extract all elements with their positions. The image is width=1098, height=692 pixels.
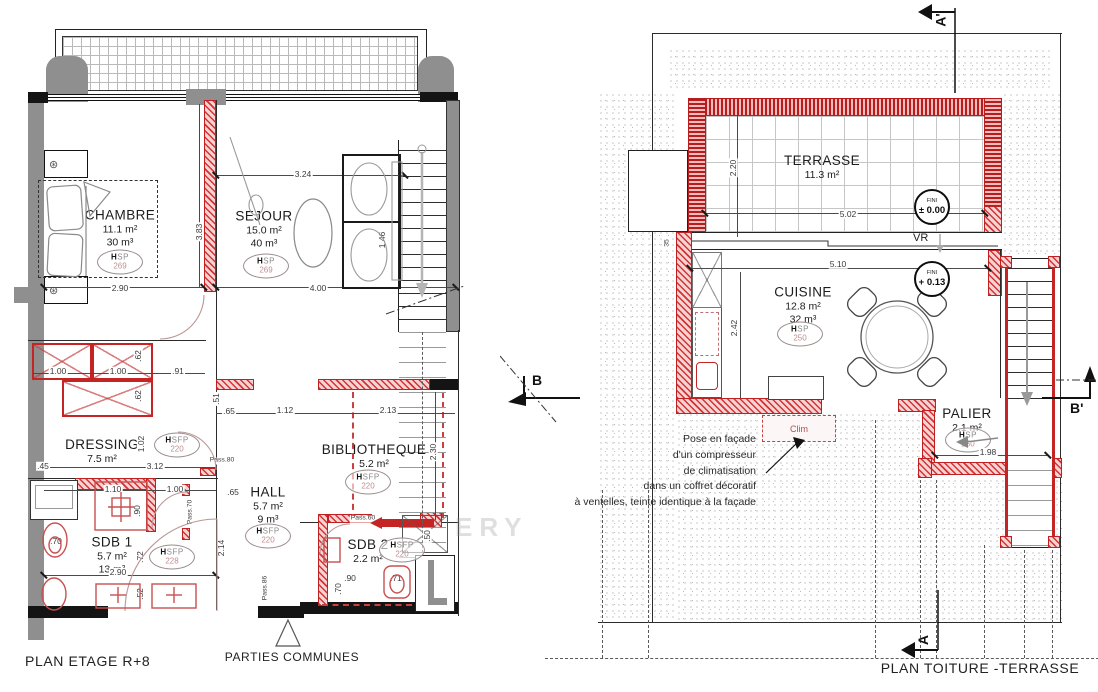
- section-marker-b: B: [532, 372, 542, 388]
- vr-strip: [688, 232, 1002, 250]
- stairs-post-bl: [1000, 536, 1012, 548]
- fini-label: FINI: [927, 199, 937, 205]
- terrasse-rail-left: [688, 98, 706, 238]
- stairs-steps-upper: [1007, 268, 1054, 404]
- window-sejour: [226, 94, 420, 101]
- room-label-hall: HALL 5.7 m² 9 m³: [250, 485, 285, 526]
- room-name: CUISINE: [774, 285, 832, 300]
- dim-label: 2.42: [730, 319, 739, 338]
- clim-box: Clim: [762, 415, 836, 442]
- room-label-cuisine: CUISINE 12.8 m² 32 m³: [774, 285, 832, 326]
- dim-label: .65: [222, 407, 236, 416]
- red-wall-palier-b: [922, 410, 935, 464]
- bathtub-inner: [35, 485, 73, 509]
- dim-label: 5.02: [839, 210, 858, 219]
- grid-dash: [920, 480, 921, 658]
- property-line-top: [652, 33, 1062, 34]
- bottom-wall-b: [258, 606, 304, 618]
- hsp-badge-sdb1: HSFP 228: [149, 545, 195, 570]
- stairs-post-br: [1048, 536, 1060, 548]
- red-corner-palier-l: [918, 458, 932, 478]
- dim-label: .70: [334, 582, 343, 596]
- dim-label-pass: Pass.60: [350, 516, 377, 523]
- right-plan-title: PLAN TOITURE -TERRASSE: [881, 660, 1080, 676]
- grid-dash: [984, 545, 985, 658]
- dim-label: 2.30: [429, 443, 438, 462]
- dim-label: 4.00: [309, 284, 328, 293]
- dim-label: .72: [136, 550, 145, 564]
- hsp-badge-cuisine: HSP 250: [777, 322, 823, 347]
- room-label-chambre: CHAMBRE 11.1 m² 30 m³: [85, 208, 155, 249]
- dim-label: .52: [136, 587, 145, 601]
- red-wall-sdb1-v: [146, 478, 156, 532]
- dim-label: .91: [171, 367, 185, 376]
- hsp-badge-sejour: HSP 269: [243, 254, 289, 279]
- dim-label: 1.46: [378, 231, 387, 250]
- fini-value: + 0.13: [919, 278, 946, 288]
- level-badge-cuisine: FINI + 0.13: [914, 261, 950, 297]
- property-line-left: [652, 33, 653, 622]
- dim-label: 2.14: [217, 539, 226, 558]
- hsp-badge-hall: HSFP 220: [245, 524, 291, 549]
- room-area: 5.7 m²: [250, 501, 285, 513]
- dim-label: 2.20: [729, 159, 738, 178]
- fini-value: ± 0.00: [919, 206, 945, 216]
- dim-label: .62: [134, 389, 143, 403]
- hsp-value: 220: [361, 482, 374, 490]
- vent-icon: ⊛: [49, 284, 58, 297]
- hsp-value: 228: [165, 557, 178, 565]
- right-boundary: [458, 330, 459, 616]
- dim-line: [44, 490, 216, 491]
- cuisine-right-line: [1000, 250, 1001, 398]
- grid-dash: [936, 480, 937, 658]
- left-plan: ⊛ ⊛ ERY CHAMBRE 11.1 m² 30 m³ HSP 269 SE…: [0, 0, 480, 692]
- dim-label: 1.00: [109, 367, 128, 376]
- dim-label: 1.00: [166, 485, 185, 494]
- section-marker-b-prime: B': [1070, 400, 1083, 416]
- red-door-jamb-1: [200, 468, 216, 476]
- dim-label: .90: [343, 574, 357, 583]
- red-wall-chambre-sejour: [204, 100, 216, 292]
- hsp-value: 220: [261, 536, 274, 544]
- property-line-bottom: [598, 622, 1062, 623]
- dim-label-pass: Pass.86: [263, 575, 270, 602]
- hsp-badge-bibliotheque: HSFP 220: [345, 470, 391, 495]
- red-wall-sdb2-left: [318, 514, 328, 606]
- dim-line: [44, 575, 216, 576]
- vegetation-right: [1002, 92, 1060, 256]
- vr-label: VR: [913, 232, 928, 244]
- dim-line: [740, 272, 741, 398]
- facade-note: Pose en façade d'un compresseur de clima…: [528, 432, 756, 511]
- dim-line: [216, 287, 456, 288]
- sdb2-shower-dash: [322, 604, 412, 606]
- stairs-rail-left: [1005, 262, 1008, 546]
- stairs-rail-right: [1052, 262, 1055, 546]
- dim-label: .70: [49, 537, 63, 546]
- dim-label: 1.02: [137, 435, 146, 454]
- vent-box-2: ⊛: [44, 276, 88, 304]
- room-volume: 30 m³: [85, 237, 155, 249]
- red-door-jamb-3: [182, 528, 190, 540]
- hsp-value: 269: [113, 262, 126, 270]
- dim-label: 1.12: [276, 406, 295, 415]
- grid-dash-h: [545, 658, 1098, 659]
- room-label-dressing: DRESSING 7.5 m²: [65, 437, 139, 465]
- clim-label: Clim: [790, 424, 808, 434]
- terrasse-rail-right: [984, 98, 1002, 208]
- kitchen-sink: [696, 362, 718, 390]
- room-name: CHAMBRE: [85, 208, 155, 223]
- dim-label: 35: [665, 238, 672, 248]
- room-name: SDB 1: [91, 535, 132, 550]
- kitchen-island: [768, 376, 824, 400]
- room-name: SEJOUR: [235, 209, 292, 224]
- dim-label: 1.98: [979, 448, 998, 457]
- dim-line: [44, 467, 216, 468]
- vent-box-1: ⊛: [44, 150, 88, 178]
- hsp-value: 220: [170, 445, 183, 453]
- room-label-terrasse: TERRASSE 11.3 m²: [784, 153, 860, 181]
- room-volume: 40 m³: [235, 238, 292, 250]
- stairs-post-tl: [1000, 256, 1012, 268]
- terrasse-rail-top: [688, 98, 1002, 116]
- red-wall-cuisine-bottom: [676, 398, 822, 414]
- kitchen-counter-cross: [692, 252, 722, 308]
- dim-label: 2.13: [379, 406, 398, 415]
- room-name: HALL: [250, 485, 285, 500]
- dim-label: 3.24: [294, 170, 313, 179]
- dim-label-pass: Pass.80: [209, 458, 236, 465]
- dim-label: 5.10: [829, 260, 848, 269]
- grid-dash: [875, 420, 876, 658]
- hsp-value: 250: [961, 440, 974, 448]
- red-wall-hall-top-a: [216, 379, 254, 390]
- hsp-value: 220: [395, 550, 408, 558]
- kitchen-cabinet-dashed: [695, 312, 719, 356]
- hsp-badge-dressing: HSFP 220: [154, 433, 200, 458]
- section-marker-a: A: [915, 635, 931, 645]
- floorplan-canvas: ⊛ ⊛ ERY CHAMBRE 11.1 m² 30 m³ HSP 269 SE…: [0, 0, 1098, 692]
- dim-label: 2.90: [111, 284, 130, 293]
- side-recess: [628, 150, 688, 232]
- grid-dash: [602, 490, 603, 658]
- dim-label: .65: [226, 488, 240, 497]
- dim-label: 3.83: [195, 223, 204, 242]
- left-plan-title: PLAN ETAGE R+8: [25, 653, 150, 669]
- dim-line: [199, 104, 200, 287]
- bottom-wall-a: [28, 606, 108, 618]
- room-area: 12.8 m²: [774, 301, 832, 313]
- level-badge-terrasse: FINI ± 0.00: [914, 189, 950, 225]
- room-area: 15.0 m²: [235, 225, 292, 237]
- red-wall-cuisine-left: [676, 232, 692, 412]
- dim-label: 2.90: [109, 568, 128, 577]
- vegetation-top: [668, 48, 1050, 92]
- room-label-sejour: SEJOUR 15.0 m² 40 m³: [235, 209, 292, 250]
- dim-label: .62: [134, 349, 143, 363]
- common-areas-label: PARTIES COMMUNES: [225, 650, 360, 664]
- dim-label: .51: [212, 392, 221, 406]
- lift-box: [415, 555, 455, 612]
- window-chambre: [48, 94, 186, 101]
- dim-label: .71: [389, 574, 403, 583]
- dim-label: .90: [133, 504, 142, 518]
- room-label-bibliotheque: BIBLIOTHEQUE 5.2 m²: [322, 442, 427, 470]
- grid-dash: [1024, 550, 1025, 658]
- stairs-steps-lower: [1007, 470, 1054, 546]
- balcony-tiles: [62, 36, 418, 91]
- left-wall-stub: [14, 287, 28, 303]
- room-name: BIBLIOTHEQUE: [322, 442, 427, 457]
- room-area: 5.7 m²: [91, 551, 132, 563]
- wall-chambre-bottom: [28, 340, 206, 341]
- property-line-right: [1060, 33, 1061, 622]
- room-name: TERRASSE: [784, 153, 860, 168]
- hsp-badge-chambre: HSP 269: [97, 250, 143, 275]
- dim-label-pass: Pass.70: [188, 499, 195, 526]
- room-area: 11.3 m²: [784, 169, 860, 181]
- dim-label: 1.00: [49, 367, 68, 376]
- dim-label: 3.12: [146, 462, 165, 471]
- right-plan: VR Clim: [500, 0, 1098, 692]
- dim-label: .45: [36, 462, 50, 471]
- room-area: 5.2 m²: [322, 458, 427, 470]
- vent-icon: ⊛: [49, 158, 58, 171]
- dim-label: .50: [423, 529, 432, 543]
- grid-dash: [648, 490, 649, 658]
- room-area: 11.1 m²: [85, 224, 155, 236]
- fini-label: FINI: [927, 271, 937, 277]
- section-marker-a-prime: A': [933, 13, 949, 26]
- hsp-badge-sdb2: HSFP 220: [379, 538, 425, 563]
- hsp-value: 269: [259, 266, 272, 274]
- stairs-post-tr: [1048, 256, 1060, 268]
- hsp-value: 250: [793, 334, 806, 342]
- dim-line: [216, 413, 455, 414]
- room-name: DRESSING: [65, 437, 139, 452]
- right-wall-top: [446, 100, 460, 332]
- grid-dash: [1052, 550, 1053, 658]
- room-name: PALIER: [942, 406, 991, 421]
- room-area: 7.5 m²: [65, 453, 139, 465]
- dim-label: 1.10: [104, 485, 123, 494]
- top-wall-corner-left: [28, 92, 48, 103]
